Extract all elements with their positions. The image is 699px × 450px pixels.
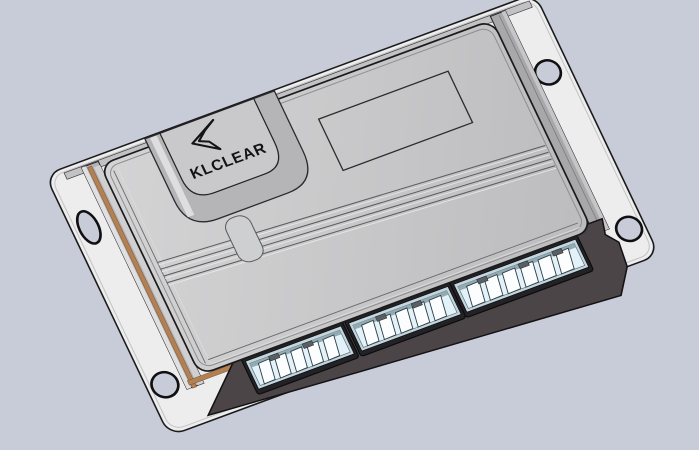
- device-render: KLCLEAR: [0, 0, 699, 450]
- cad-viewport[interactable]: KLCLEAR: [0, 0, 699, 450]
